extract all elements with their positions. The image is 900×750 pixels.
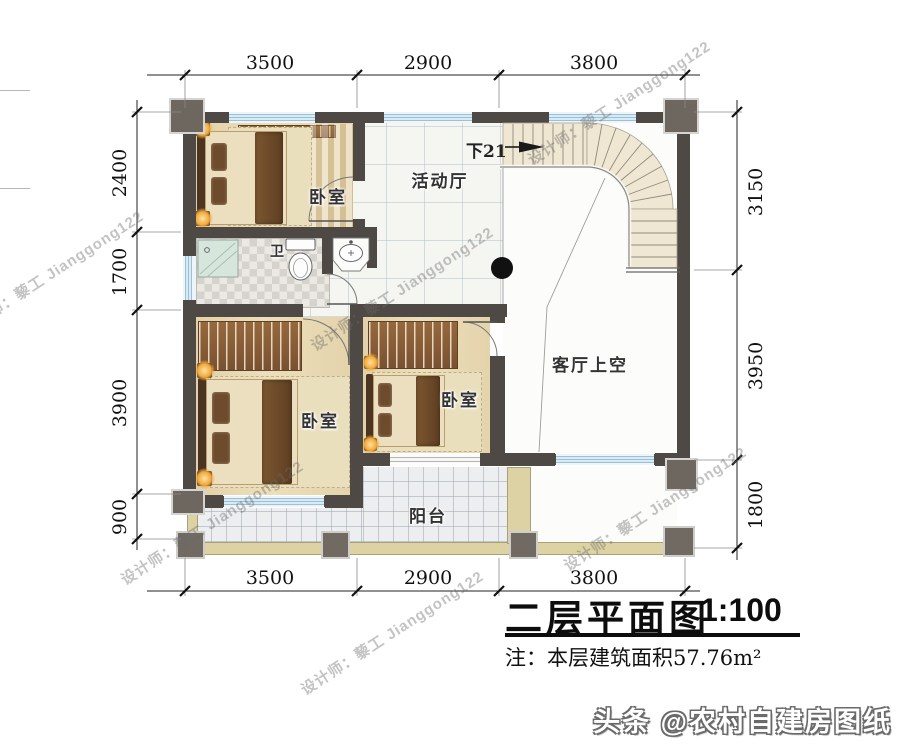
floor-plan-canvas: 卧室 活动厅 卫 卧室 卧室 客厅上空 阳台 下21 3500 2900 380… xyxy=(0,0,900,750)
room-label-hall: 活动厅 xyxy=(406,167,474,192)
balcony-column xyxy=(663,526,695,557)
wardrobe xyxy=(198,321,302,371)
nightstand-lamp xyxy=(197,471,212,486)
wall-bedroom-top-bottom xyxy=(183,227,377,238)
room-label-bedroom-left: 卧室 xyxy=(292,407,348,432)
pillow xyxy=(212,392,230,424)
pillow xyxy=(212,432,230,464)
wall-bedroom-mid-right-stub xyxy=(490,317,505,323)
dim-top-3: 3800 xyxy=(564,52,624,74)
dim-left-2: 1700 xyxy=(109,242,131,302)
nightstand-lamp xyxy=(197,363,212,378)
corner-pier-left-bottom xyxy=(171,489,205,515)
nightstand-lamp xyxy=(364,438,377,451)
stair-void-floor xyxy=(503,123,677,453)
window-top-hall xyxy=(383,112,473,123)
dim-bottom-1: 3500 xyxy=(240,567,300,589)
lamp-glow-icon xyxy=(194,468,215,489)
wall-void-bottom-b xyxy=(480,453,555,466)
title-underline xyxy=(505,633,800,637)
wall-void-bottom-a xyxy=(350,453,390,466)
bed-blanket xyxy=(255,132,283,224)
lamp-glow-icon xyxy=(194,360,215,381)
closet-strip xyxy=(310,124,353,227)
wall-mid-left xyxy=(183,304,303,317)
room-label-bath: 卫 xyxy=(266,241,288,261)
room-label-balcony: 阳台 xyxy=(405,502,451,527)
wall-sink-niche xyxy=(367,238,377,268)
wall-bath-door-stub xyxy=(322,238,333,274)
column-dot xyxy=(491,257,513,279)
dim-top-2: 2900 xyxy=(398,52,458,74)
pillow xyxy=(378,413,392,437)
edge-extension-line xyxy=(0,188,30,189)
stair-down-note: 下21 xyxy=(466,137,507,162)
dim-left-1: 2400 xyxy=(109,143,131,203)
wall-bedroom-top-right xyxy=(353,123,365,181)
edge-extension-line xyxy=(0,90,30,91)
area-note: 注：本层建筑面积57.76m² xyxy=(505,642,761,672)
bathroom-floor xyxy=(196,238,330,308)
dim-right-1: 3150 xyxy=(745,162,767,222)
dim-right-3: 1800 xyxy=(745,475,767,535)
publisher-watermark: 头条 @农村自建房图纸 xyxy=(593,700,892,739)
balcony-slider xyxy=(390,454,480,465)
wall-bedrooms-divider xyxy=(350,317,363,508)
wall-bedroom-top-right-stub xyxy=(353,219,365,228)
dim-left-4: 900 xyxy=(109,487,131,547)
balcony-column xyxy=(509,531,538,559)
wardrobe xyxy=(368,321,458,369)
dim-top-1: 3500 xyxy=(240,52,300,74)
corner-pier-top-right xyxy=(663,98,699,134)
sink-niche-floor xyxy=(333,238,367,272)
pillow xyxy=(378,383,392,407)
window-top-bedroom xyxy=(228,112,316,123)
room-label-bedroom-top: 卧室 xyxy=(300,183,356,208)
corner-pier-top-left xyxy=(169,98,205,134)
room-label-bedroom-mid: 卧室 xyxy=(432,386,488,411)
dim-left-3: 3900 xyxy=(109,373,131,433)
window-left-bath xyxy=(183,255,196,301)
drawing-scale: 1:100 xyxy=(700,592,782,629)
window-void-bottom xyxy=(555,454,655,465)
wall-bedroom-left-bottom-b xyxy=(325,495,363,508)
wall-right xyxy=(677,112,690,463)
designer-watermark: 设计师：藜工 Jianggong122 xyxy=(297,565,488,699)
lamp-glow-icon xyxy=(361,435,380,454)
nightstand-lamp xyxy=(195,211,210,226)
balcony-column xyxy=(321,531,350,559)
lamp-glow-icon xyxy=(361,353,380,372)
pillow xyxy=(211,143,227,171)
dim-right-2: 3950 xyxy=(745,336,767,396)
room-label-living-void: 客厅上空 xyxy=(525,351,655,376)
wall-bedroom-mid-right xyxy=(490,356,505,453)
nightstand-lamp xyxy=(364,356,377,369)
pillow xyxy=(211,177,227,205)
